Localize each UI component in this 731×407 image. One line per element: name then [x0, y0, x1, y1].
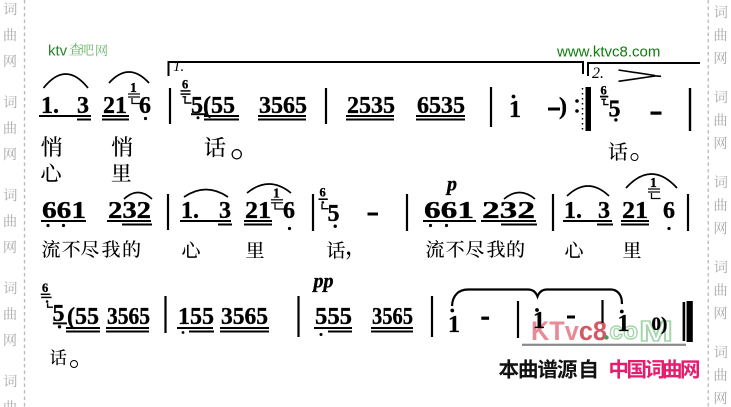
svg-text:6: 6	[182, 78, 188, 92]
svg-text:5: 5	[609, 97, 621, 123]
svg-text:5: 5	[328, 201, 340, 227]
svg-text:ktv: ktv	[48, 43, 68, 60]
svg-text:6: 6	[601, 84, 607, 98]
svg-text:pp: pp	[312, 271, 334, 293]
svg-text:6: 6	[283, 198, 295, 224]
svg-text:555: 555	[315, 304, 352, 330]
svg-text:1: 1	[650, 175, 657, 190]
svg-text:2.: 2.	[592, 65, 604, 82]
svg-text:6: 6	[663, 198, 675, 224]
svg-text:1: 1	[533, 308, 545, 334]
svg-text:1: 1	[130, 80, 137, 95]
svg-text:www.ktvc8.com: www.ktvc8.com	[556, 44, 660, 61]
svg-text:55: 55	[190, 304, 214, 330]
svg-text:3565: 3565	[372, 304, 413, 330]
svg-text:1.: 1.	[173, 59, 184, 75]
svg-text:6: 6	[320, 186, 326, 200]
svg-text:1: 1	[618, 311, 630, 337]
svg-text:1: 1	[178, 304, 190, 330]
svg-text:1: 1	[448, 312, 460, 338]
svg-text:6: 6	[139, 93, 151, 119]
svg-text:): )	[559, 94, 567, 120]
svg-text:3565: 3565	[221, 304, 268, 330]
svg-text:0): 0)	[652, 314, 668, 335]
svg-text:p: p	[445, 174, 457, 196]
svg-text:1: 1	[273, 186, 280, 201]
svg-text:6: 6	[42, 281, 48, 295]
svg-text:(55: (55	[67, 304, 99, 330]
svg-text:3565: 3565	[107, 304, 150, 330]
svg-text:1: 1	[509, 97, 521, 123]
